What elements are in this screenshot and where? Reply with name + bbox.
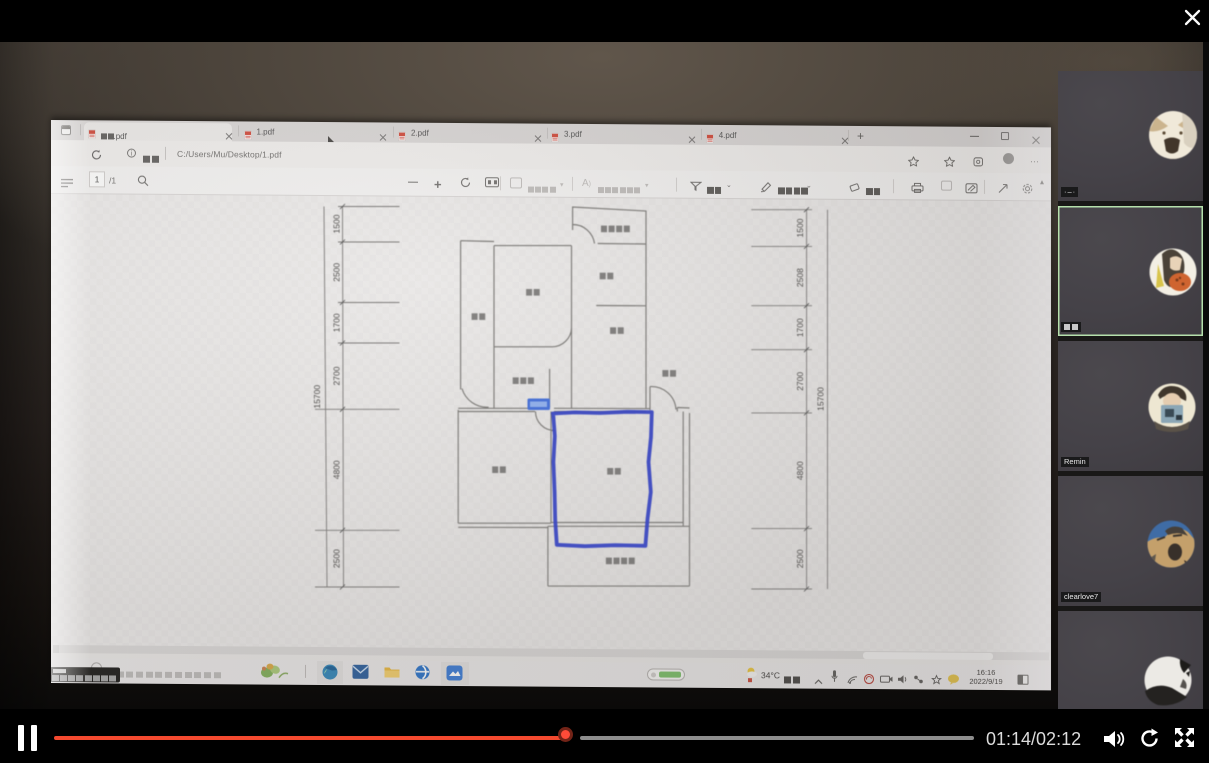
- svg-text:4800: 4800: [332, 460, 342, 479]
- svg-text:2700: 2700: [795, 372, 805, 391]
- svg-text:1700: 1700: [332, 313, 342, 332]
- svg-text:4800: 4800: [795, 461, 805, 480]
- svg-text:2500: 2500: [795, 549, 805, 568]
- svg-text:2700: 2700: [332, 366, 342, 385]
- svg-text:15700: 15700: [312, 385, 322, 409]
- svg-text:15700: 15700: [816, 387, 826, 411]
- svg-text:1500: 1500: [332, 214, 342, 233]
- svg-text:2500: 2500: [332, 263, 342, 282]
- svg-text:1700: 1700: [795, 318, 805, 337]
- svg-text:2500: 2500: [332, 549, 342, 568]
- svg-text:2508: 2508: [795, 268, 805, 287]
- svg-text:1500: 1500: [795, 218, 805, 237]
